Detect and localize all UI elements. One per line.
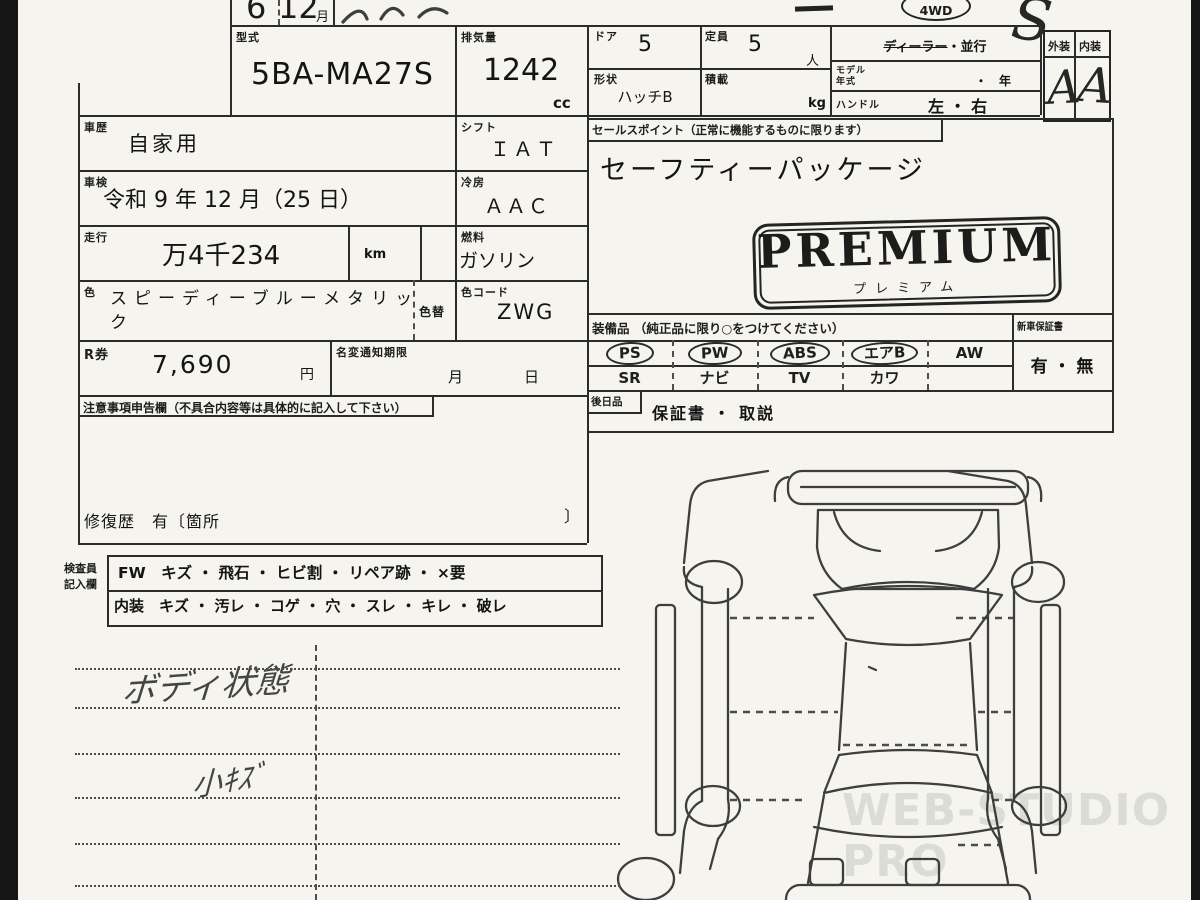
auction-sheet: WEB-STUDIO PRO 6 12 月 4WD S 型式 5BA-MA27S… (0, 0, 1200, 900)
mileage-value: 万4千234 (162, 235, 280, 272)
r-ticket-label: R券 (84, 344, 109, 363)
photo-edge-right (1191, 0, 1200, 900)
dealer-separator: ・ (948, 40, 961, 55)
name-change-deadline-label: 名変通知期限 (336, 344, 408, 360)
divider-line (78, 170, 587, 172)
divider-line (333, 0, 335, 25)
repair-history-bracket: 〕 (564, 503, 580, 527)
interior-label: 内装 (1079, 38, 1101, 54)
capacity-value: 5 (700, 32, 810, 57)
color-label: 色 (84, 284, 96, 300)
model-code-value: 5BA-MA27S (230, 57, 455, 92)
equipment-item-tv: TV (757, 366, 842, 391)
doors-value: 5 (590, 32, 700, 57)
divider-line (830, 90, 1040, 92)
later-items-value: 保証書 ・ 取説 (652, 400, 775, 424)
grade-box: 外装 内装 A A (1043, 30, 1111, 122)
color-code-value: ZWG (497, 300, 554, 324)
divider-line (75, 885, 620, 887)
handwritten-note: ボディ状態 (120, 652, 291, 713)
mileage-unit: km (364, 247, 386, 262)
divider-line (1012, 313, 1014, 391)
fuel-label: 燃料 (461, 229, 485, 245)
equipment-item-ps: PS (587, 341, 672, 366)
equipment-item-kawa: カワ (842, 366, 927, 391)
capacity-unit: 人 (806, 50, 819, 69)
divider-line (78, 115, 1040, 117)
divider-line (348, 225, 350, 280)
divider-line (842, 340, 844, 390)
inspector-interior-row: 内装 キズ ・ 汚レ ・ コゲ ・ 穴 ・ スレ ・ キレ ・ 破レ (114, 595, 507, 616)
divider-line (75, 668, 620, 670)
divider-line (927, 340, 929, 390)
model-year-suffix: ・ 年 (975, 72, 1011, 89)
inspector-fw-row: FW キズ ・ 飛石 ・ ヒビ割 ・ リペア跡 ・ ×要 (118, 561, 465, 583)
divider-line (587, 365, 1012, 367)
divider-line (75, 707, 620, 709)
handwritten-dash-mark (795, 5, 833, 11)
equipment-item-navi: ナビ (672, 366, 757, 391)
equipment-label: 装備品 （純正品に限り○をつけてください） (592, 318, 844, 337)
body-shape-label: 形状 (594, 71, 618, 87)
divider-line (830, 60, 1040, 62)
divider-line (109, 590, 601, 592)
load-unit: kg (808, 96, 826, 111)
steering-label: ハンドル (836, 96, 880, 111)
displacement-label: 排気量 (461, 29, 497, 45)
mileage-label: 走行 (84, 229, 108, 245)
divider-line (587, 431, 1112, 433)
warranty-value: 有 ・ 無 (1012, 352, 1112, 377)
divider-line (75, 797, 620, 799)
displacement-unit: cc (553, 94, 571, 112)
divider-line (75, 843, 620, 845)
divider-line (640, 390, 642, 414)
model-year-label-2: 年式 (836, 74, 856, 87)
divider-line (757, 340, 759, 390)
photo-edge-left (0, 0, 18, 900)
equipment-item-pw: PW (672, 341, 757, 366)
equipment-item-aw: AW (927, 341, 1012, 366)
divider-line (330, 340, 332, 395)
divider-line (78, 225, 587, 227)
reg-month-2: 12 (278, 0, 319, 25)
dealer-option: ディーラー (883, 40, 947, 55)
divider-line (1112, 118, 1114, 433)
parallel-option: 並行 (961, 40, 987, 55)
history-value: 自家用 (128, 128, 200, 158)
divider-line (700, 25, 702, 115)
fuel-value: ガソリン (459, 246, 535, 273)
divider-line (278, 0, 280, 25)
divider-line (413, 280, 415, 340)
inspection-value: 令和 9 年 12 月（25 日） (103, 182, 362, 214)
sales-point-value: セーフティーパッケージ (600, 148, 926, 187)
color-code-label: 色コード (461, 284, 509, 300)
inspector-label-1: 検査員 (64, 560, 97, 576)
divider-line (1040, 25, 1042, 115)
steering-value: 左 ・ 右 (928, 93, 987, 117)
drive-type-oval: 4WD (901, 0, 971, 21)
interior-grade: A (1076, 57, 1114, 115)
divider-line (432, 395, 434, 417)
aircon-label: 冷房 (461, 174, 485, 190)
divider-line (230, 25, 1040, 27)
drive-type-label: 4WD (920, 3, 953, 19)
divider-line (587, 313, 1112, 315)
body-shape-value: ハッチB (590, 86, 700, 107)
equipment-item-airbag: エアB (842, 341, 927, 366)
notice-label: 注意事項申告欄（不具合内容等は具体的に記入して下さい） (83, 399, 407, 416)
reg-month-unit: 月 (316, 6, 329, 25)
exterior-label: 外装 (1048, 38, 1070, 54)
repair-history-text: 修復歴 有〔箇所 (84, 508, 220, 532)
sales-point-label: セールスポイント（正常に機能するものに限ります） (592, 122, 868, 138)
name-change-deadline-value: 月 日 (448, 366, 543, 387)
dealer-parallel-cell: ディーラー・並行 (832, 36, 1038, 55)
divider-line (587, 25, 589, 543)
divider-line (587, 140, 941, 142)
equipment-item-abs: ABS (757, 341, 842, 366)
divider-line (587, 390, 1112, 392)
load-label: 積載 (705, 71, 729, 87)
premium-stamp: PREMIUM プレミアム (752, 216, 1062, 310)
shift-value: ＩＡＴ (490, 133, 559, 162)
divider-line (455, 25, 457, 340)
registration-month-cell: 6 12 月 (230, 0, 333, 25)
divider-line (420, 225, 422, 280)
divider-line (315, 645, 317, 900)
divider-line (78, 395, 587, 397)
r-ticket-value: 7,690 (152, 350, 234, 379)
divider-line (587, 412, 642, 414)
color-value: スピーディーブルーメタリック (110, 288, 420, 336)
handwritten-scribble (335, 0, 465, 26)
divider-line (78, 340, 587, 342)
divider-line (830, 25, 832, 115)
divider-line (78, 543, 587, 545)
equipment-item-empty (927, 366, 1012, 391)
premium-stamp-title: PREMIUM (755, 217, 1058, 279)
r-ticket-unit: 円 (300, 364, 314, 384)
divider-line (75, 753, 620, 755)
divider-line (78, 280, 587, 282)
divider-line (587, 68, 830, 70)
car-diagram (615, 455, 1105, 900)
history-label: 車歴 (84, 119, 108, 135)
warranty-label: 新車保証書 (1017, 318, 1063, 333)
divider-line (587, 340, 1112, 342)
divider-line (78, 83, 80, 543)
reg-month-1: 6 (246, 0, 266, 25)
divider-line (230, 0, 232, 115)
divider-line (78, 415, 432, 417)
color-change-label: 色替 (419, 303, 445, 320)
divider-line (587, 118, 1112, 120)
displacement-value: 1242 (455, 53, 587, 88)
model-code-label: 型式 (236, 29, 260, 45)
aircon-value: ＡＡＣ (484, 190, 550, 219)
equipment-item-sr: SR (587, 366, 672, 391)
inspector-label-2: 記入欄 (64, 576, 97, 592)
later-items-label: 後日品 (591, 394, 623, 409)
divider-line (672, 340, 674, 390)
divider-line (941, 118, 943, 142)
